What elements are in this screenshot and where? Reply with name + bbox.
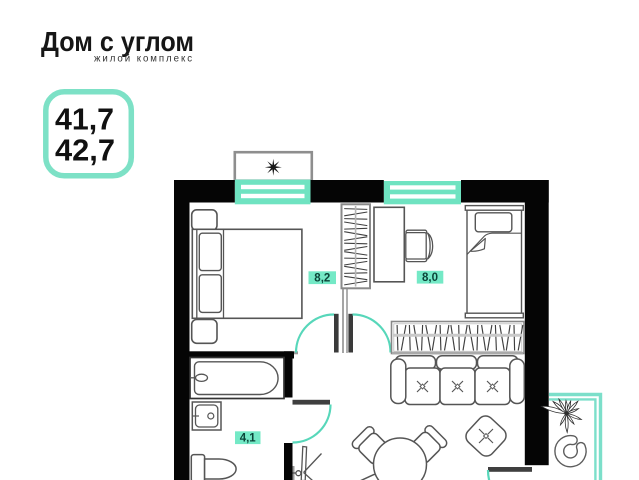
svg-text:8,2: 8,2 — [314, 273, 330, 285]
svg-text:41,7: 41,7 — [55, 102, 114, 137]
svg-text:жилой комплекс: жилой комплекс — [94, 54, 194, 65]
svg-text:8,0: 8,0 — [422, 272, 438, 284]
svg-text:Дом с углом: Дом с углом — [41, 26, 194, 57]
svg-text:42,7: 42,7 — [55, 133, 115, 168]
svg-text:4,1: 4,1 — [240, 433, 257, 445]
